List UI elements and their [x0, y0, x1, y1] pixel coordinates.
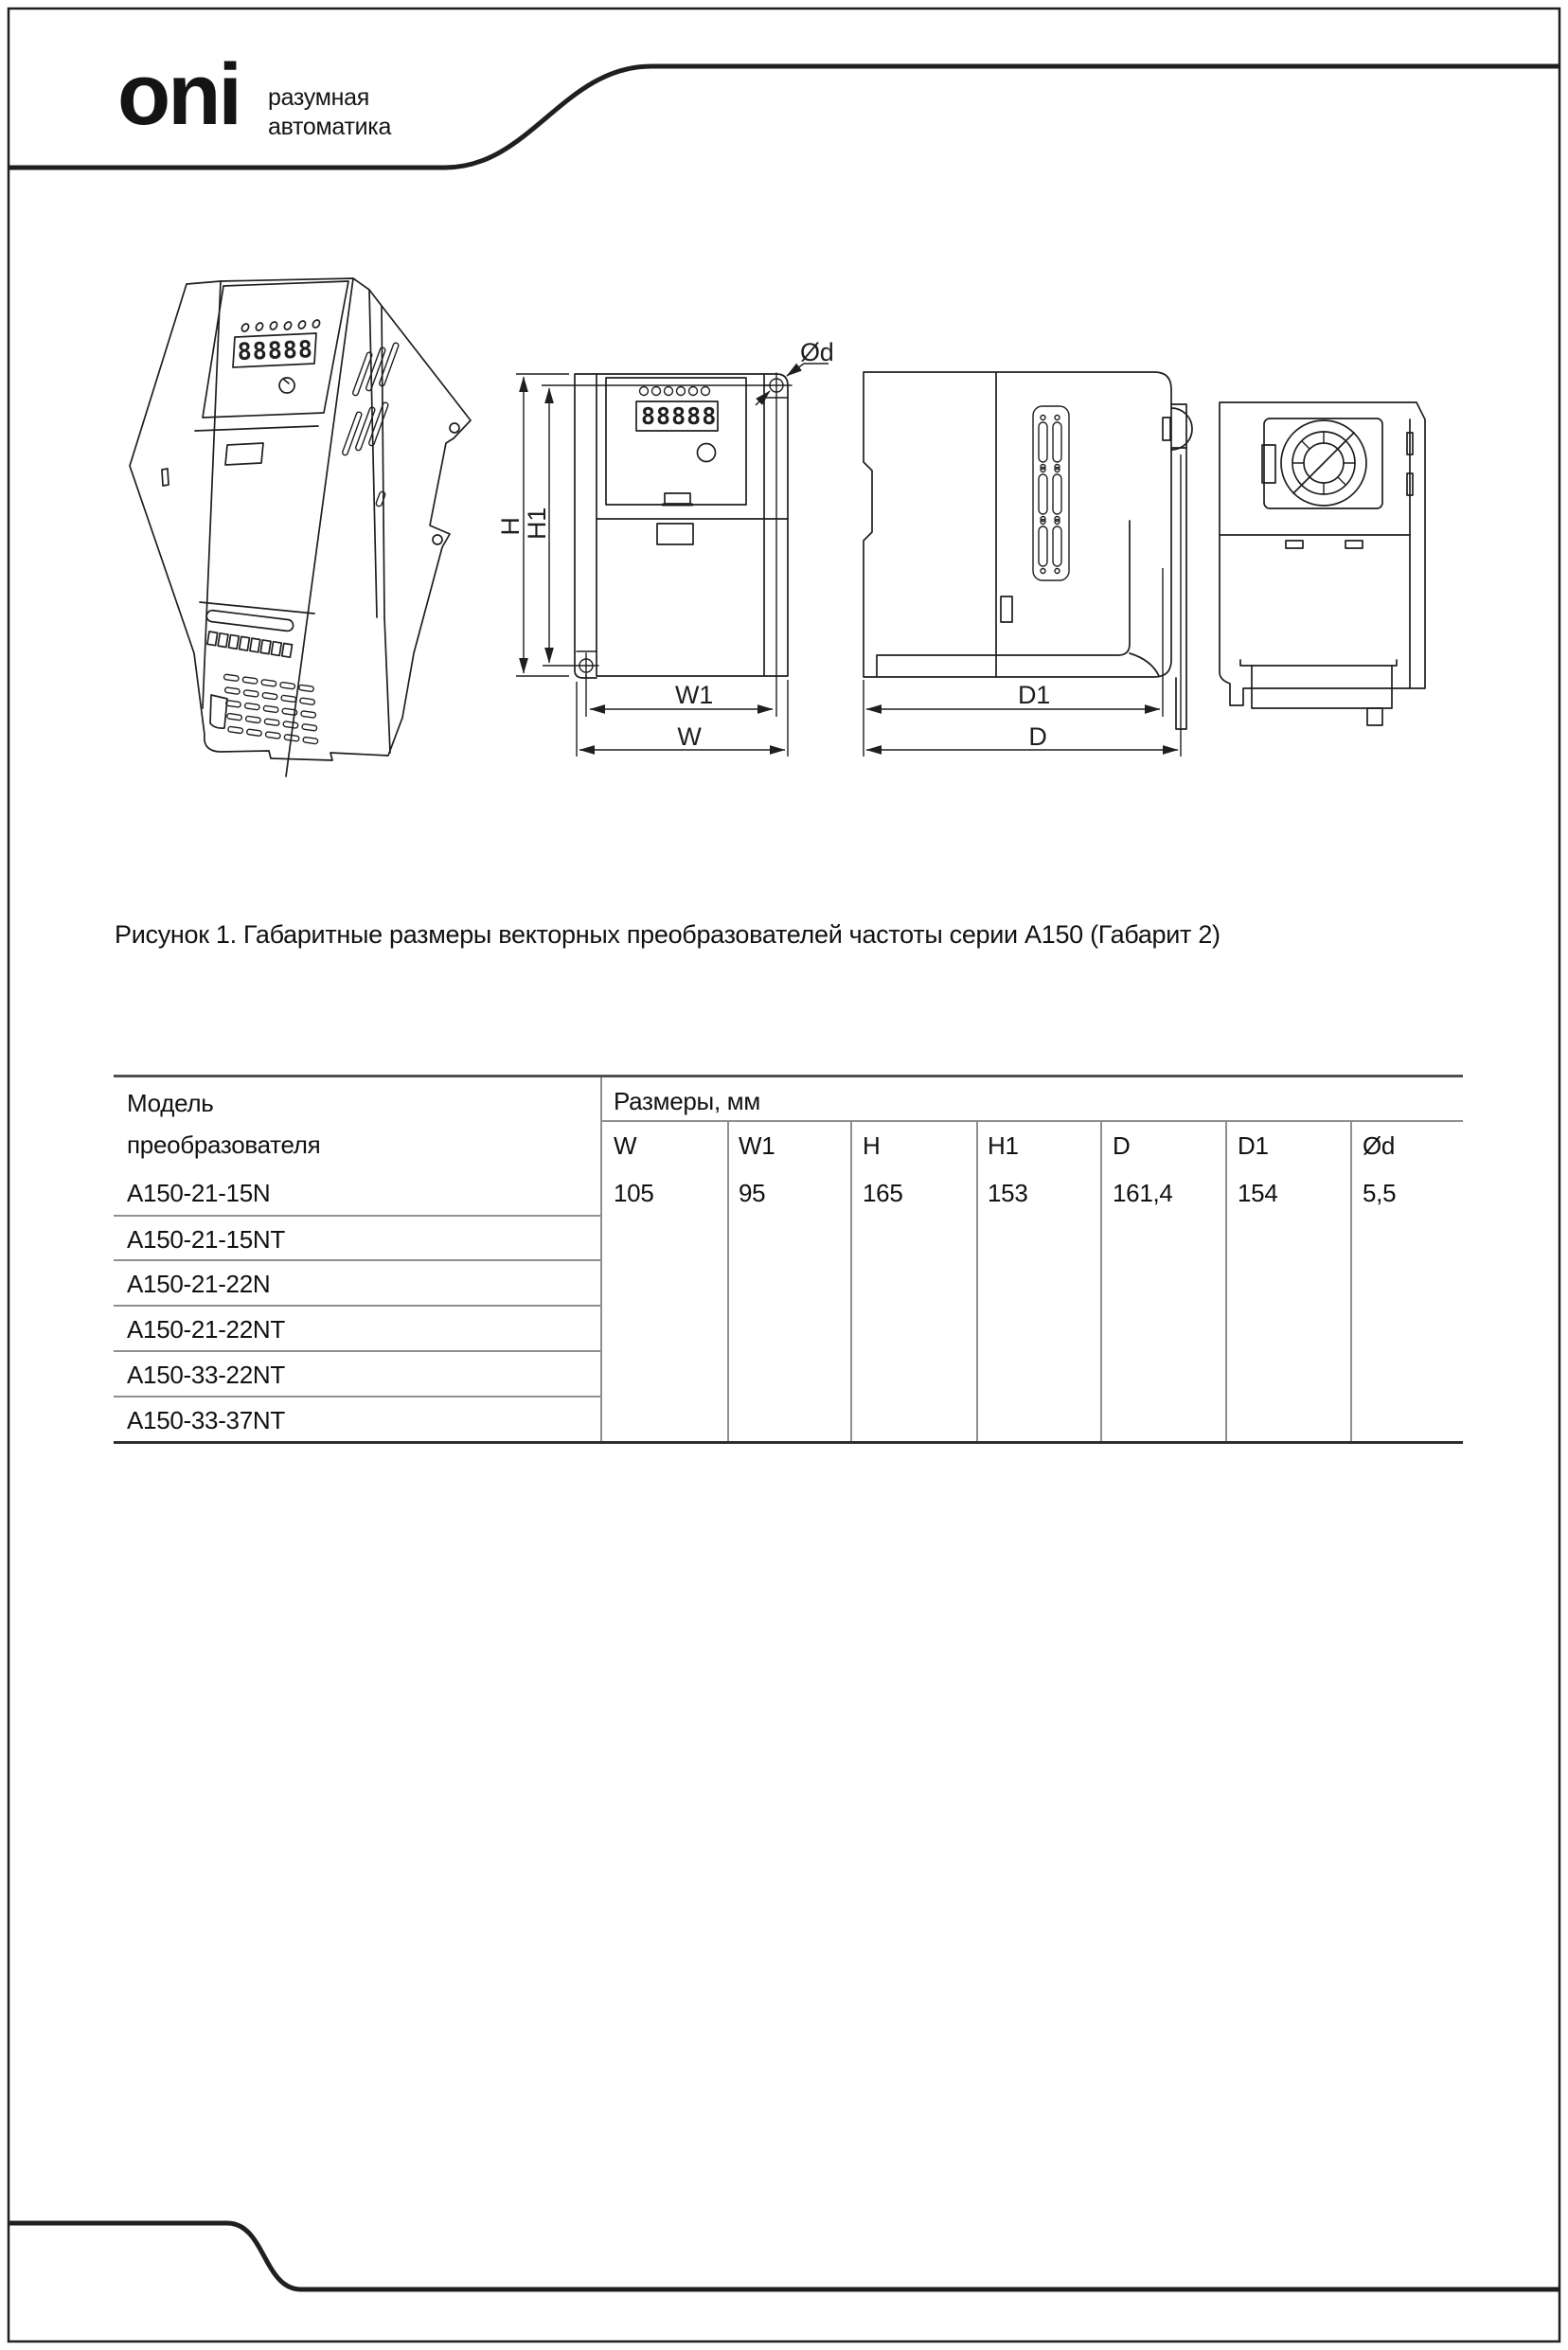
- front-display-value: 88888: [641, 402, 717, 430]
- model-cell: A150-21-15N: [127, 1179, 270, 1208]
- value-cell-w: 105: [614, 1179, 653, 1208]
- value-cell-h1: 153: [988, 1179, 1027, 1208]
- table-border-top: [114, 1075, 1463, 1077]
- iso-display: 88888: [233, 333, 316, 367]
- document-page: oni разумная автоматика: [0, 0, 1568, 2350]
- isometric-view: 88888: [130, 278, 471, 776]
- value-cell-w1: 95: [739, 1179, 765, 1208]
- figure-caption: Рисунок 1. Габаритные размеры векторных …: [115, 920, 1221, 950]
- row-separator: [114, 1215, 600, 1217]
- iso-terminals: [207, 632, 293, 657]
- col-header-dia: Ød: [1363, 1131, 1395, 1161]
- front-display: 88888: [636, 401, 718, 431]
- table-header-underline: [600, 1120, 1463, 1122]
- col-header-w: W: [614, 1131, 636, 1161]
- col-header-h1: H1: [988, 1131, 1019, 1161]
- dim-label-w: W: [677, 722, 702, 751]
- side-view-dimensions: D1 D: [864, 454, 1181, 757]
- brand-tagline: разумная автоматика: [268, 83, 391, 142]
- model-cell: A150-33-22NT: [127, 1361, 285, 1390]
- model-cell: A150-21-22N: [127, 1270, 270, 1299]
- front-view: 88888: [565, 373, 792, 678]
- dimensions-table: Модель преобразователя Размеры, мм W W1 …: [114, 1075, 1463, 1444]
- front-knob: [698, 444, 716, 462]
- value-cell-d1: 154: [1238, 1179, 1277, 1208]
- iso-vent-grid: [217, 674, 326, 744]
- iso-display-value: 88888: [237, 335, 313, 365]
- front-view-dimensions: H H1 W1 W Ød: [496, 338, 833, 757]
- value-cell-h: 165: [863, 1179, 902, 1208]
- row-separator: [114, 1259, 600, 1261]
- header-curve: [9, 66, 1559, 168]
- front-led-holes: [640, 387, 710, 396]
- col-header-d1: D1: [1238, 1131, 1269, 1161]
- col-header-d: D: [1113, 1131, 1130, 1161]
- dim-label-h1: H1: [523, 507, 551, 540]
- dim-label-d1: D1: [1018, 681, 1050, 709]
- value-cell-dia: 5,5: [1363, 1179, 1396, 1208]
- dim-label-w1: W1: [675, 681, 713, 709]
- dim-label-dia: Ød: [800, 338, 833, 366]
- mounting-hole-bottom: [565, 651, 598, 678]
- row-separator: [114, 1396, 600, 1398]
- model-cell: A150-21-15NT: [127, 1225, 285, 1255]
- row-separator: [114, 1350, 600, 1352]
- iso-knob: [279, 378, 294, 393]
- brand-logo: oni: [117, 45, 240, 145]
- model-header-line2: преобразователя: [127, 1130, 320, 1160]
- col-header-h: H: [863, 1131, 880, 1161]
- dim-label-d: D: [1028, 722, 1046, 751]
- sizes-group-header: Размеры, мм: [614, 1087, 760, 1116]
- fan: [1264, 418, 1382, 508]
- value-cell-d: 161,4: [1113, 1179, 1173, 1208]
- model-header-line1: Модель: [127, 1089, 214, 1118]
- model-cell: A150-33-37NT: [127, 1406, 285, 1435]
- side-connector-panel: [1033, 406, 1069, 580]
- side-view: [864, 372, 1192, 729]
- model-cell: A150-21-22NT: [127, 1315, 285, 1344]
- brand-tagline-line1: разумная: [268, 83, 391, 113]
- footer-curve: [9, 2223, 1559, 2289]
- dim-label-h: H: [496, 517, 525, 535]
- row-separator: [114, 1305, 600, 1307]
- iso-led-holes: [241, 319, 321, 333]
- col-header-w1: W1: [739, 1131, 775, 1161]
- top-view: [1220, 402, 1425, 725]
- mounting-hole-top: [763, 373, 792, 398]
- iso-side-vents: [342, 342, 400, 507]
- table-border-bottom: [114, 1441, 1463, 1444]
- brand-tagline-line2: автоматика: [268, 113, 391, 142]
- table-divider-model: [600, 1077, 602, 1441]
